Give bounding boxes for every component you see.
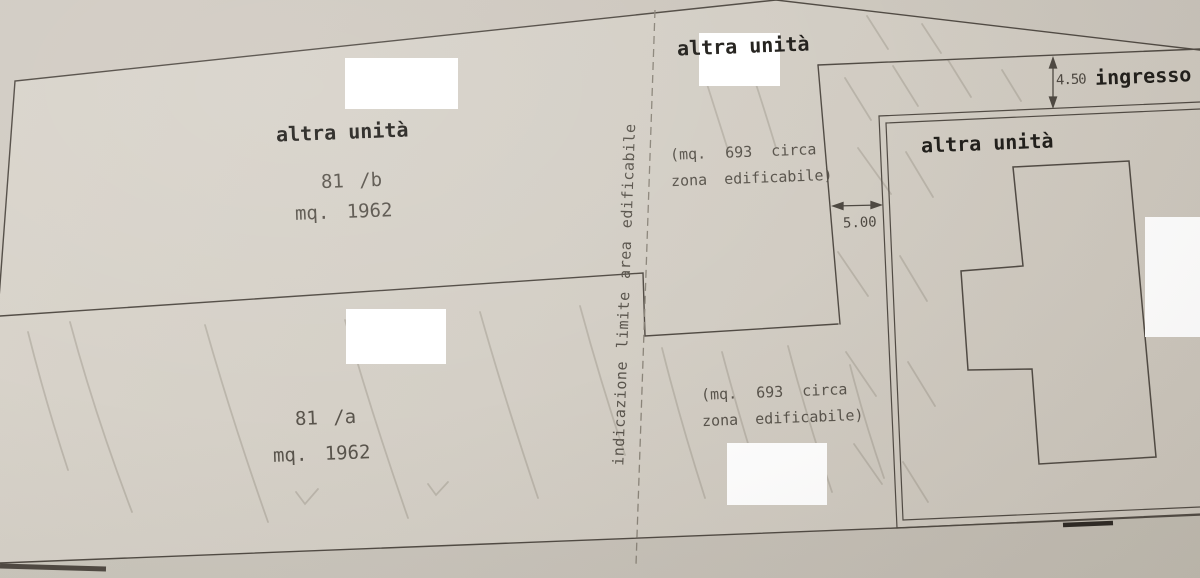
redaction-box	[1145, 217, 1200, 337]
outside-shade-top-left	[0, 0, 776, 312]
redaction-box	[727, 443, 827, 505]
building-footprint	[961, 161, 1156, 464]
thick-edge-mark	[1063, 523, 1113, 525]
dim-4-50-arrowhead-top	[1050, 58, 1057, 68]
parcel-81b-code: 81 /b	[321, 171, 383, 193]
parcel-81b-title: altra unità	[276, 119, 409, 145]
ingresso-strip-upper-line	[818, 49, 1200, 65]
site-plan-scan: altra unità 81 /b mq. 1962 altra unità (…	[0, 0, 1200, 578]
redaction-box	[346, 309, 446, 364]
parcel-81b-area: mq. 1962	[295, 201, 393, 225]
dim-4-50-arrowhead-bottom	[1050, 97, 1057, 107]
entrance-label: ingresso	[1095, 64, 1192, 89]
outside-shade-bottom	[0, 515, 1200, 578]
right-unit-title: altra unità	[921, 130, 1054, 156]
zone-top-right-edge	[818, 65, 840, 324]
dashed-buildable-limit-line	[636, 10, 655, 565]
parcel-boundaries	[0, 0, 1200, 563]
bottom-left-dark-wedge	[0, 566, 106, 569]
dimension-4-50-label: 4.50	[1056, 72, 1086, 88]
zone-top-title: altra unità	[677, 33, 810, 59]
dim-5-00-arrowhead-left	[833, 203, 843, 210]
parcel-81a-code: 81 /a	[295, 408, 357, 430]
dim-5-00-arrowhead-right	[871, 202, 881, 209]
redaction-box	[345, 58, 458, 109]
parcel-81a-area: mq. 1962	[273, 443, 371, 467]
dimension-5-00-label: 5.00	[843, 215, 877, 231]
plan-linework	[0, 0, 1200, 578]
pencil-hatch-marks	[28, 16, 1021, 522]
